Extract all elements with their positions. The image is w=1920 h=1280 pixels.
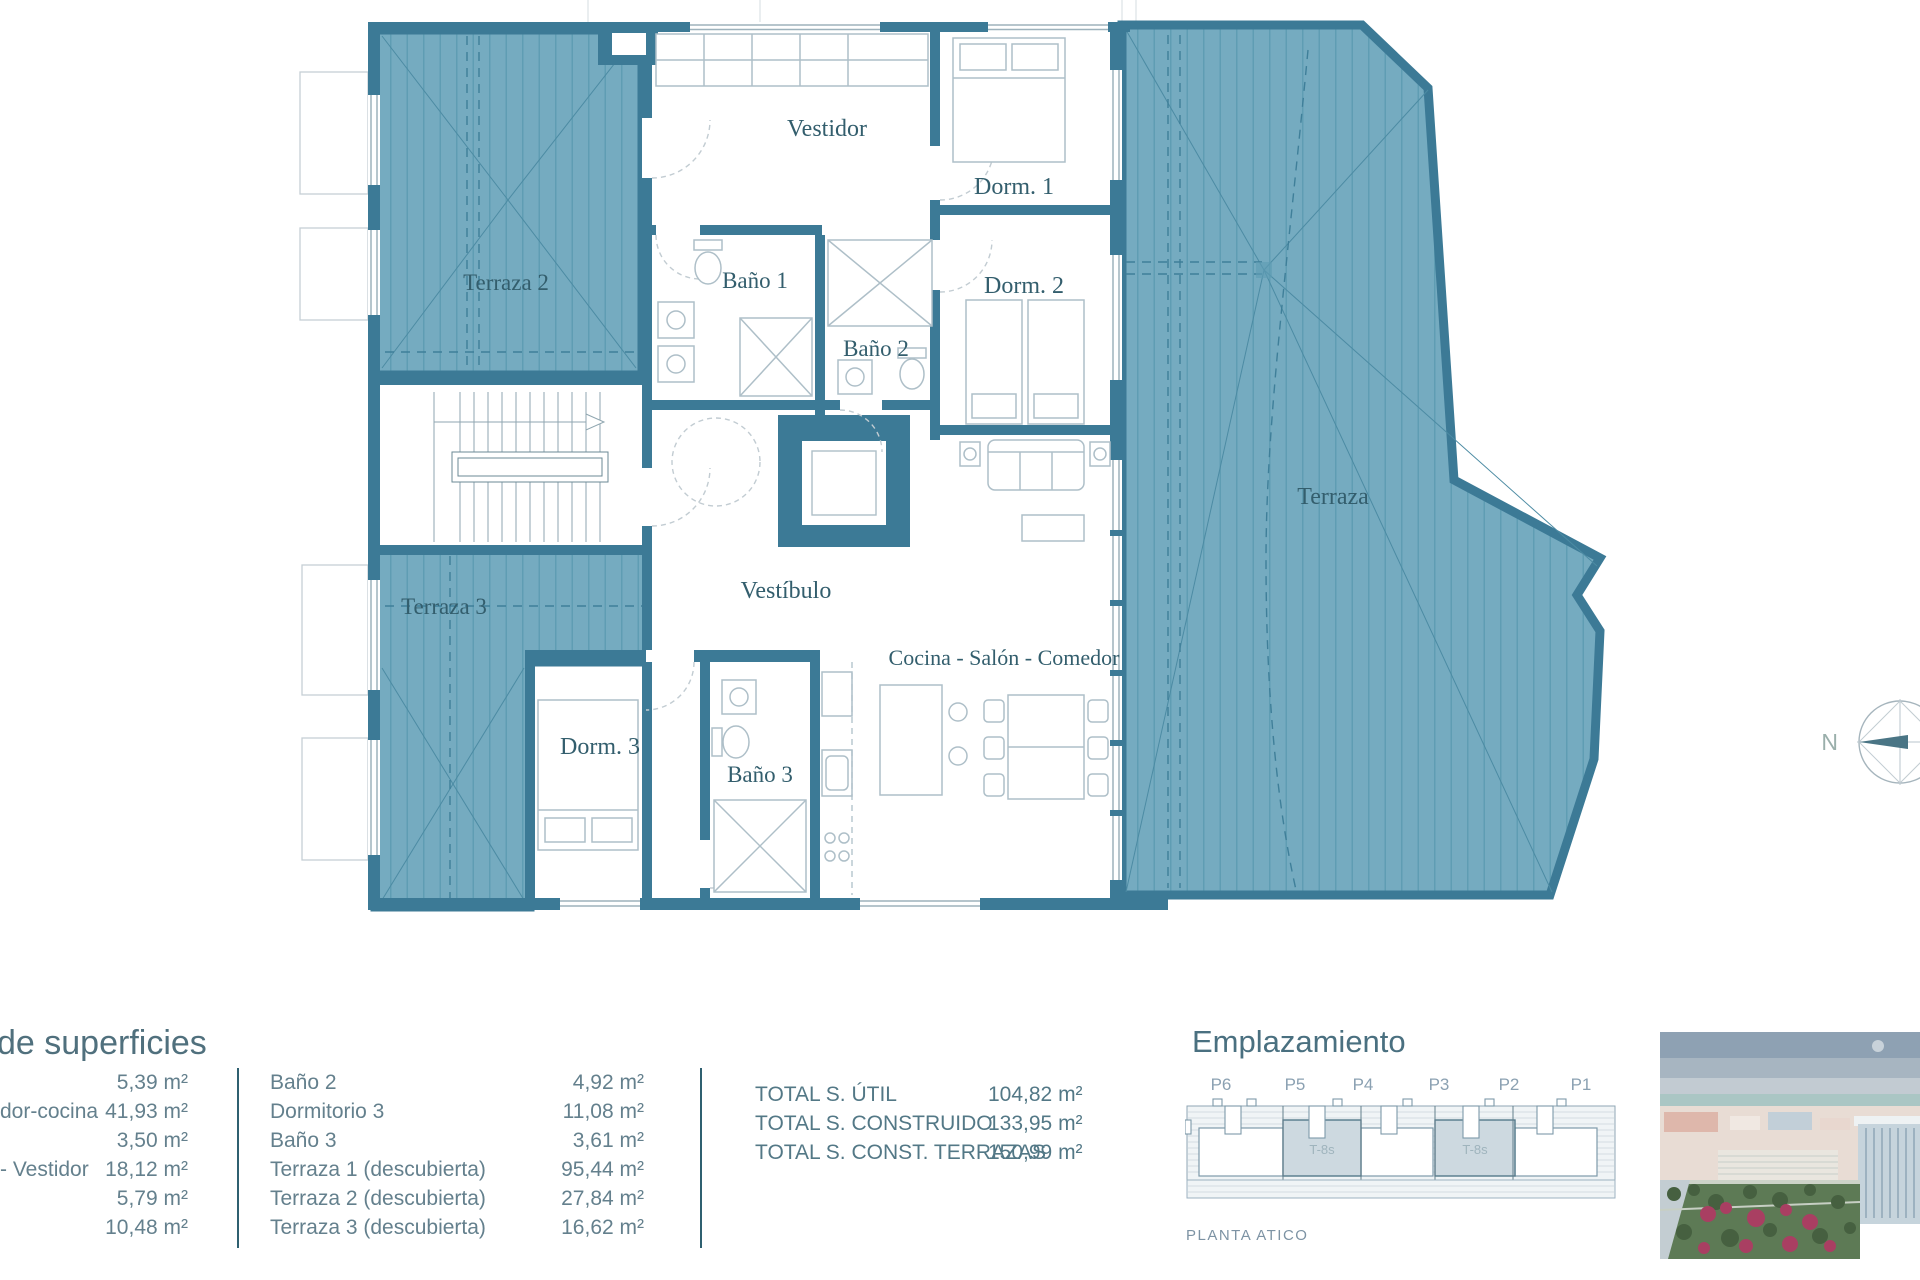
elevator-car xyxy=(802,441,886,525)
planta-atico-caption: PLANTA ATICO xyxy=(1186,1227,1308,1244)
table-divider-1 xyxy=(237,1068,239,1248)
room-label-bano1: Baño 1 xyxy=(722,268,788,293)
table-row-value: 16,62 m² xyxy=(530,1216,644,1240)
table-row-value: 41,93 m² xyxy=(70,1100,188,1124)
projection-lines xyxy=(588,0,1136,25)
unit-label-t8s-1: T-8s xyxy=(1309,1142,1335,1157)
table-row-label: Terraza 1 (descubierta) xyxy=(270,1158,486,1182)
room-label-bano3: Baño 3 xyxy=(727,762,793,787)
portal-p1: P1 xyxy=(1571,1075,1592,1094)
room-label-bano2: Baño 2 xyxy=(843,336,909,361)
table-row-value: 3,61 m² xyxy=(530,1129,644,1153)
table-row-label: Baño 3 xyxy=(270,1129,337,1153)
table-row-value: 4,92 m² xyxy=(530,1071,644,1095)
total-util-value: 104,82 m² xyxy=(988,1083,1083,1107)
room-label-dorm2: Dorm. 2 xyxy=(984,273,1064,299)
total-construido-value: 133,95 m² xyxy=(988,1112,1083,1136)
table-row-label: Dormitorio 3 xyxy=(270,1100,384,1124)
emplazamiento-title: Emplazamiento xyxy=(1192,1024,1406,1060)
floor-plan-drawing: Terraza 2 Terraza 3 Terraza Vestidor Dor… xyxy=(0,0,1920,1030)
total-util-label: TOTAL S. ÚTIL xyxy=(755,1083,897,1107)
total-terrazas-value: 150,99 m² xyxy=(988,1141,1083,1165)
emplazamiento-diagram: P6 P5 P4 P3 P2 P1 xyxy=(1185,1068,1625,1233)
room-label-vestidor: Vestidor xyxy=(787,116,867,142)
table-row-label: Terraza 2 (descubierta) xyxy=(270,1187,486,1211)
table-row-value: 5,79 m² xyxy=(70,1187,188,1211)
portal-p4: P4 xyxy=(1353,1075,1374,1094)
table-row-value: 5,39 m² xyxy=(70,1071,188,1095)
stairs xyxy=(434,392,608,542)
table-row-value: 27,84 m² xyxy=(530,1187,644,1211)
compass-north-label: N xyxy=(1821,729,1838,755)
table-row-value: 95,44 m² xyxy=(530,1158,644,1182)
table-row-value: 10,48 m² xyxy=(70,1216,188,1240)
table-row-value: 3,50 m² xyxy=(70,1129,188,1153)
table-row-label: Baño 2 xyxy=(270,1071,337,1095)
compass: N xyxy=(1821,699,1920,785)
shaft-inner xyxy=(612,33,646,55)
table-row-label: Terraza 3 (descubierta) xyxy=(270,1216,486,1240)
room-label-vestibulo: Vestíbulo xyxy=(741,578,832,604)
surfaces-table-title: de superficies xyxy=(0,1024,207,1063)
total-construido-label: TOTAL S. CONSTRUIDO xyxy=(755,1112,993,1136)
aerial-photo xyxy=(1660,1032,1920,1259)
unit-label-t8s-2: T-8s xyxy=(1462,1142,1488,1157)
portal-p2: P2 xyxy=(1499,1075,1520,1094)
neighbour-outlines xyxy=(300,72,368,860)
portal-p5: P5 xyxy=(1285,1075,1306,1094)
portal-p3: P3 xyxy=(1429,1075,1450,1094)
table-row-value: 11,08 m² xyxy=(530,1100,644,1124)
ridge-node xyxy=(1256,262,1272,278)
table-row-value: 18,12 m² xyxy=(70,1158,188,1182)
room-label-terraza2: Terraza 2 xyxy=(463,270,549,295)
room-label-cocina: Cocina - Salón - Comedor xyxy=(889,645,1121,670)
table-divider-2 xyxy=(700,1068,702,1248)
portal-labels: P6 P5 P4 P3 P2 P1 xyxy=(1211,1075,1592,1094)
room-label-dorm1: Dorm. 1 xyxy=(974,174,1054,200)
room-label-dorm3: Dorm. 3 xyxy=(560,734,640,760)
room-label-terraza: Terraza xyxy=(1297,484,1369,510)
floor-plan-sheet: Terraza 2 Terraza 3 Terraza Vestidor Dor… xyxy=(0,0,1920,1280)
room-label-terraza3: Terraza 3 xyxy=(401,594,487,619)
portal-p6: P6 xyxy=(1211,1075,1232,1094)
